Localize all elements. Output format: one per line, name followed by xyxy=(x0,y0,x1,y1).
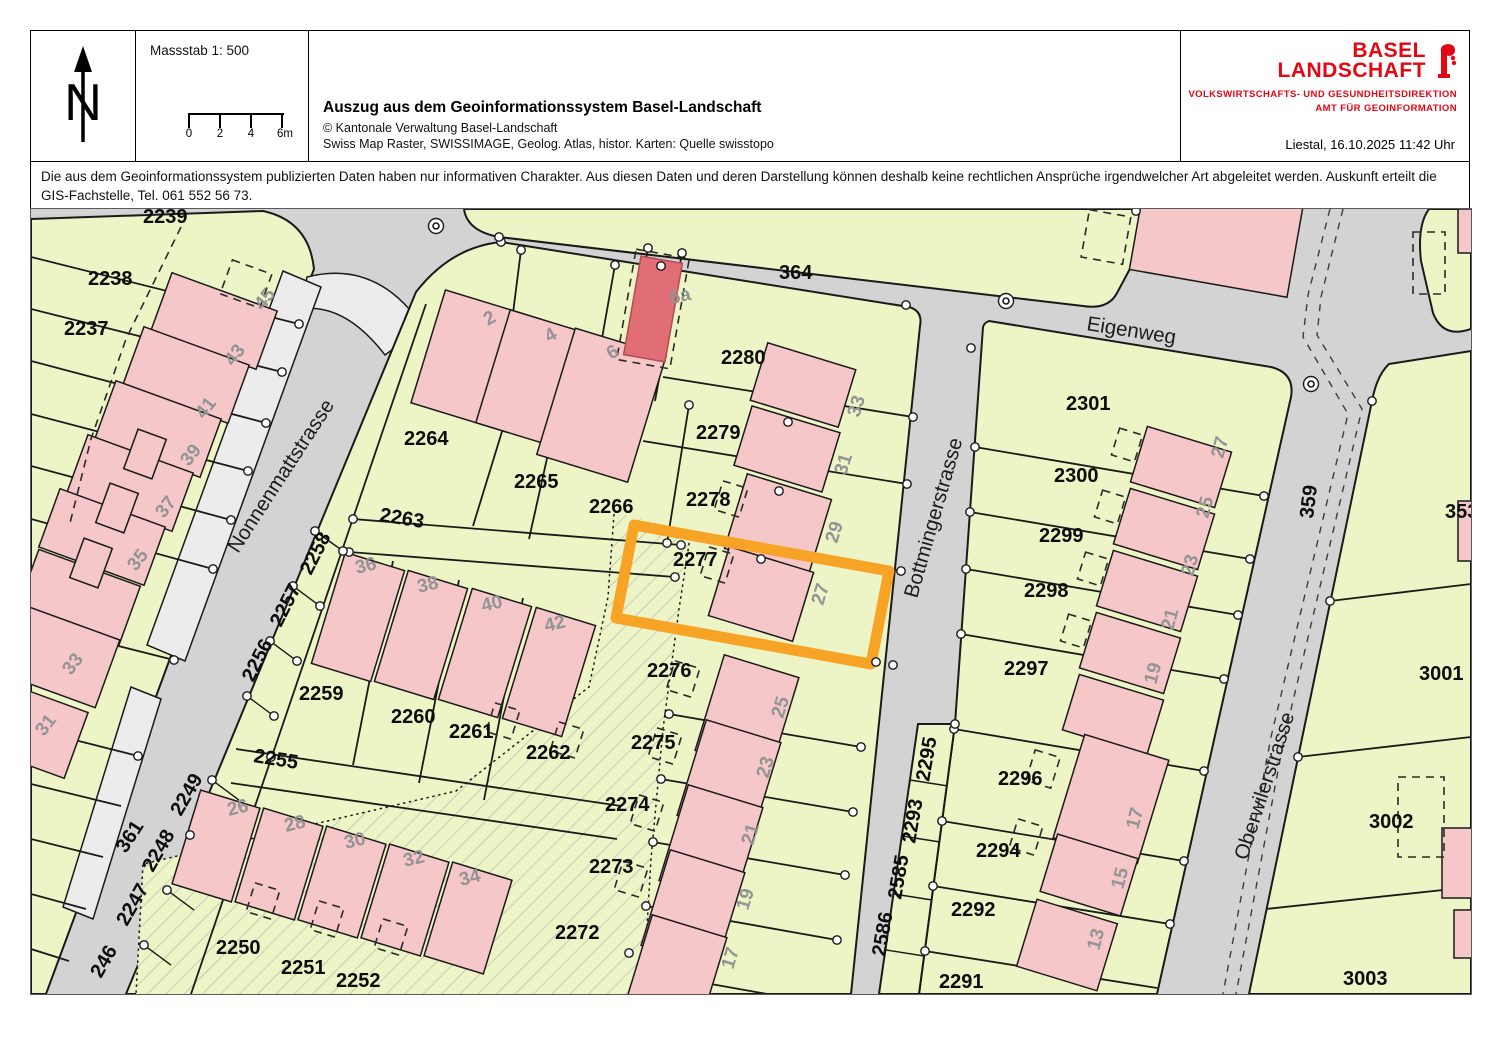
boundary-vertex xyxy=(208,776,216,784)
boundary-vertex xyxy=(140,941,148,949)
title-box: Auszug aus dem Geoinformationssystem Bas… xyxy=(309,31,1181,161)
boundary-vertex xyxy=(186,831,194,839)
map-label-2250: 2250 xyxy=(216,937,261,959)
map-label-2239: 2239 xyxy=(143,209,188,228)
boundary-vertex xyxy=(849,808,857,816)
boundary-vertex xyxy=(163,886,171,894)
boundary-vertex xyxy=(495,233,503,241)
map-label-2300: 2300 xyxy=(1054,465,1099,487)
boundary-vertex xyxy=(270,712,278,720)
map-canvas: 2239223822372264226522662263228022792278… xyxy=(31,209,1471,994)
map-label-2272: 2272 xyxy=(555,922,600,944)
boundary-vertex xyxy=(909,413,917,421)
boundary-vertex xyxy=(872,658,880,666)
boundary-vertex xyxy=(921,947,929,955)
boundary-vertex xyxy=(278,368,286,376)
boundary-vertex xyxy=(685,401,693,409)
boundary-vertex xyxy=(1326,597,1334,605)
boundary-vertex xyxy=(677,541,685,549)
boundary-vertex xyxy=(902,301,910,309)
boundary-vertex xyxy=(1166,920,1174,928)
print-dateline: Liestal, 16.10.2025 11:42 Uhr xyxy=(1285,137,1455,152)
map-label-2301: 2301 xyxy=(1066,393,1111,415)
map-label-2278: 2278 xyxy=(686,489,731,511)
boundary-vertex xyxy=(170,656,178,664)
boundary-vertex xyxy=(293,657,301,665)
map-label-2291: 2291 xyxy=(939,971,984,993)
scale-bar: 0 2 4 6m xyxy=(188,113,284,142)
north-arrow-box: N xyxy=(31,31,136,161)
basel-landschaft-crest-icon xyxy=(1431,41,1457,81)
map-label-2260: 2260 xyxy=(391,706,436,728)
boundary-vertex xyxy=(644,244,652,252)
header-band: N Massstab 1: 500 0 2 4 6m Auszug aus de… xyxy=(30,30,1470,162)
copyright-line: © Kantonale Verwaltung Basel-Landschaft xyxy=(323,120,1180,136)
boundary-vertex xyxy=(857,743,865,751)
map-label-2292: 2292 xyxy=(951,899,996,921)
map-label-2296: 2296 xyxy=(998,768,1043,790)
map-frame: 2239223822372264226522662263228022792278… xyxy=(30,208,1472,995)
boundary-vertex xyxy=(316,602,324,610)
survey-control-point xyxy=(999,294,1014,309)
map-label-2299: 2299 xyxy=(1039,525,1084,547)
boundary-vertex xyxy=(1246,555,1254,563)
boundary-vertex xyxy=(1132,209,1140,215)
map-label-2261: 2261 xyxy=(449,721,494,743)
scale-tick-4: 4 xyxy=(248,128,254,140)
boundary-vertex xyxy=(665,710,673,718)
scale-tick-2: 2 xyxy=(217,128,223,140)
boundary-vertex xyxy=(951,720,959,728)
boundary-vertex xyxy=(1368,397,1376,405)
map-label-2251: 2251 xyxy=(281,957,326,979)
map-label-2237: 2237 xyxy=(64,318,109,340)
map-label-2277: 2277 xyxy=(673,549,718,571)
boundary-vertex xyxy=(262,419,270,427)
boundary-vertex xyxy=(244,467,252,475)
map-label-2264: 2264 xyxy=(404,428,449,450)
boundary-vertex xyxy=(227,516,235,524)
logo-office-line: AMT FÜR GEOINFORMATION xyxy=(1181,102,1457,116)
boundary-vertex xyxy=(957,630,965,638)
boundary-vertex xyxy=(671,573,679,581)
boundary-vertex xyxy=(775,487,783,495)
boundary-vertex xyxy=(678,249,686,257)
boundary-vertex xyxy=(897,567,905,575)
boundary-vertex xyxy=(966,508,974,516)
boundary-vertex xyxy=(134,752,142,760)
scale-tick-6m: 6m xyxy=(277,128,293,140)
boundary-vertex xyxy=(611,261,619,269)
boundary-vertex xyxy=(657,775,665,783)
boundary-vertex xyxy=(209,565,217,573)
boundary-vertex xyxy=(971,443,979,451)
map-label-2274: 2274 xyxy=(605,794,650,816)
boundary-vertex xyxy=(889,661,897,669)
map-label-3001: 3001 xyxy=(1419,663,1464,685)
map-label-2238: 2238 xyxy=(88,268,133,290)
sources-line: Swiss Map Raster, SWISSIMAGE, Geolog. At… xyxy=(323,136,1180,152)
logo-box: BASEL LANDSCHAFT VOLKSWIRTSCHAFTS- UND G… xyxy=(1181,31,1469,161)
scale-tick-0: 0 xyxy=(186,128,192,140)
map-label-2298: 2298 xyxy=(1024,580,1069,602)
map-label-353: 353 xyxy=(1445,501,1471,523)
boundary-vertex xyxy=(1180,857,1188,865)
boundary-vertex xyxy=(929,882,937,890)
boundary-vertex xyxy=(349,515,357,523)
boundary-vertex xyxy=(663,539,671,547)
boundary-vertex xyxy=(967,344,975,352)
scale-box: Massstab 1: 500 0 2 4 6m xyxy=(136,31,309,161)
boundary-vertex xyxy=(1200,767,1208,775)
boundary-vertex xyxy=(339,547,347,555)
boundary-vertex xyxy=(962,565,970,573)
boundary-vertex xyxy=(833,936,841,944)
logo-line1: BASEL xyxy=(1278,41,1426,61)
boundary-vertex xyxy=(841,871,849,879)
map-label-359: 359 xyxy=(1296,484,1322,520)
map-label-364: 364 xyxy=(779,262,813,284)
boundary-vertex xyxy=(757,555,765,563)
boundary-vertex xyxy=(1294,753,1302,761)
boundary-vertex xyxy=(649,838,657,846)
map-label-3003: 3003 xyxy=(1343,968,1388,990)
page-title: Auszug aus dem Geoinformationssystem Bas… xyxy=(323,99,1180,117)
boundary-vertex xyxy=(938,817,946,825)
logo-wordmark: BASEL LANDSCHAFT xyxy=(1278,41,1426,80)
survey-control-point xyxy=(429,219,444,234)
map-label-2262: 2262 xyxy=(526,742,571,764)
map-label-2265: 2265 xyxy=(514,471,559,493)
boundary-vertex xyxy=(295,320,303,328)
boundary-vertex xyxy=(1260,492,1268,500)
map-label-2259: 2259 xyxy=(299,683,344,705)
scale-label: Massstab 1: 500 xyxy=(150,43,249,58)
boundary-vertex xyxy=(784,418,792,426)
map-label-3002: 3002 xyxy=(1369,811,1414,833)
map-label-2275: 2275 xyxy=(631,732,676,754)
map-label-2252: 2252 xyxy=(336,970,381,992)
logo-line2: LANDSCHAFT xyxy=(1278,61,1426,81)
boundary-vertex xyxy=(903,480,911,488)
map-label-2294: 2294 xyxy=(976,840,1021,862)
map-label-2279: 2279 xyxy=(696,422,741,444)
boundary-vertex xyxy=(625,949,633,957)
map-label-2280: 2280 xyxy=(721,347,766,369)
north-arrow-icon: N xyxy=(52,44,114,148)
map-label-2276: 2276 xyxy=(647,660,692,682)
boundary-vertex xyxy=(243,692,251,700)
boundary-vertex xyxy=(1220,675,1228,683)
disclaimer-text: Die aus dem Geoinformationssystem publiz… xyxy=(30,161,1470,210)
boundary-vertex xyxy=(517,246,525,254)
boundary-vertex xyxy=(657,262,665,270)
logo-dept-line: VOLKSWIRTSCHAFTS- UND GESUNDHEITSDIREKTI… xyxy=(1181,88,1457,102)
boundary-vertex xyxy=(1234,611,1242,619)
gis-extract-sheet: N Massstab 1: 500 0 2 4 6m Auszug aus de… xyxy=(0,0,1500,1060)
boundary-vertex xyxy=(642,902,650,910)
map-label-2266: 2266 xyxy=(589,496,634,518)
survey-control-point xyxy=(1304,377,1319,392)
map-label-2297: 2297 xyxy=(1004,658,1049,680)
map-label-2273: 2273 xyxy=(589,856,634,878)
